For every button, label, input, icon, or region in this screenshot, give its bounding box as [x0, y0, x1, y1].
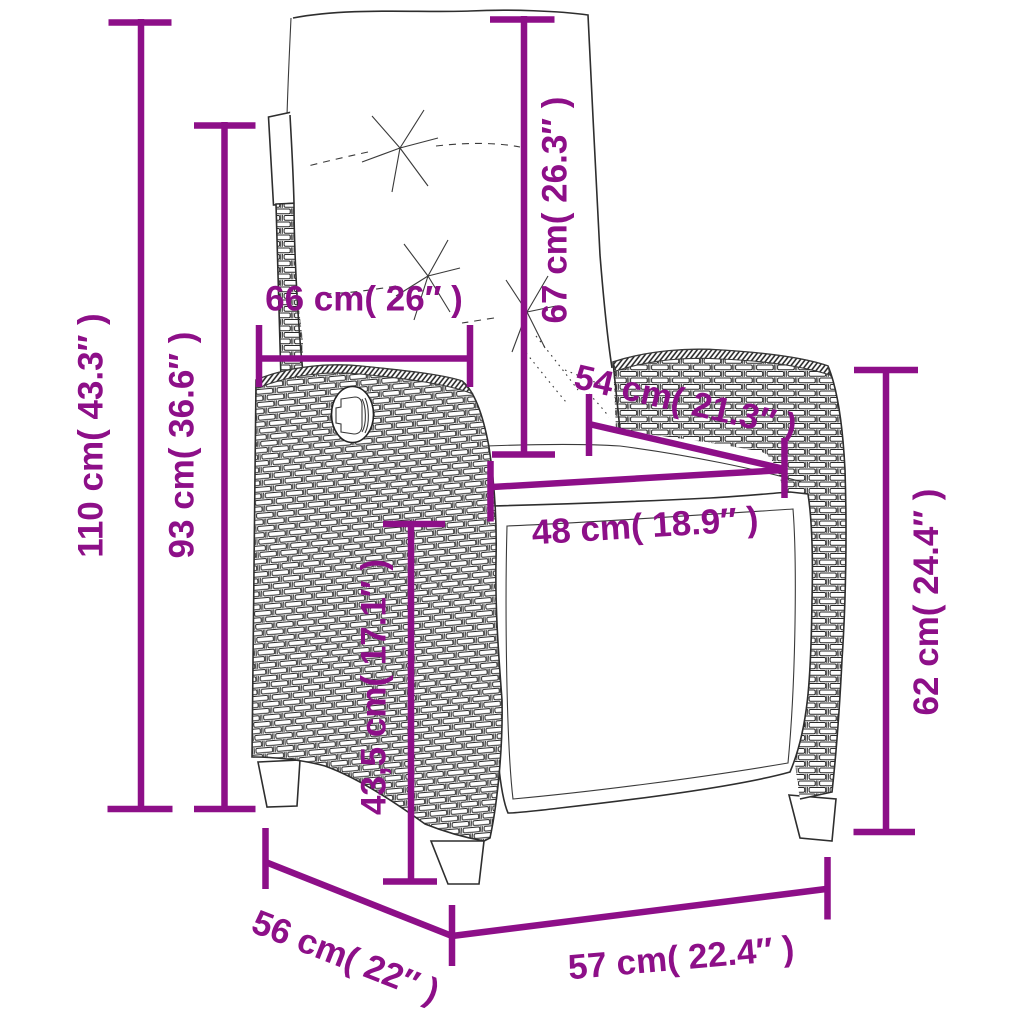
- svg-text:110 cm( 43.3″ ): 110 cm( 43.3″ ): [72, 313, 111, 557]
- svg-text:43,5 cm( 17.1″ ): 43,5 cm( 17.1″ ): [355, 559, 394, 815]
- svg-text:67 cm( 26.3″ ): 67 cm( 26.3″ ): [536, 97, 575, 324]
- svg-text:93 cm( 36.6″ ): 93 cm( 36.6″ ): [163, 332, 202, 559]
- svg-text:66 cm( 26″ ): 66 cm( 26″ ): [265, 280, 463, 319]
- svg-text:62 cm( 24.4″ ): 62 cm( 24.4″ ): [907, 489, 946, 716]
